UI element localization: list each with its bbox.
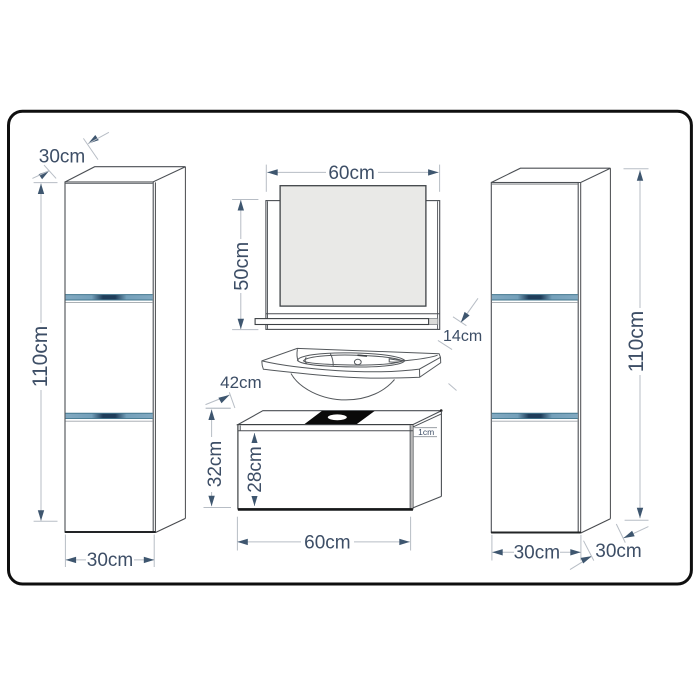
svg-text:1cm: 1cm: [418, 427, 434, 437]
svg-text:50cm: 50cm: [231, 242, 253, 291]
svg-text:32cm: 32cm: [205, 441, 226, 487]
svg-text:30cm: 30cm: [595, 541, 641, 562]
svg-text:30cm: 30cm: [39, 147, 85, 168]
svg-text:30cm: 30cm: [514, 542, 560, 563]
svg-text:60cm: 60cm: [304, 533, 350, 554]
svg-text:60cm: 60cm: [328, 163, 374, 184]
svg-text:14cm: 14cm: [443, 328, 482, 345]
svg-text:110cm: 110cm: [625, 311, 648, 372]
svg-text:42cm: 42cm: [220, 373, 262, 392]
svg-text:28cm: 28cm: [245, 446, 266, 492]
svg-text:30cm: 30cm: [87, 550, 133, 571]
svg-text:110cm: 110cm: [29, 326, 52, 387]
